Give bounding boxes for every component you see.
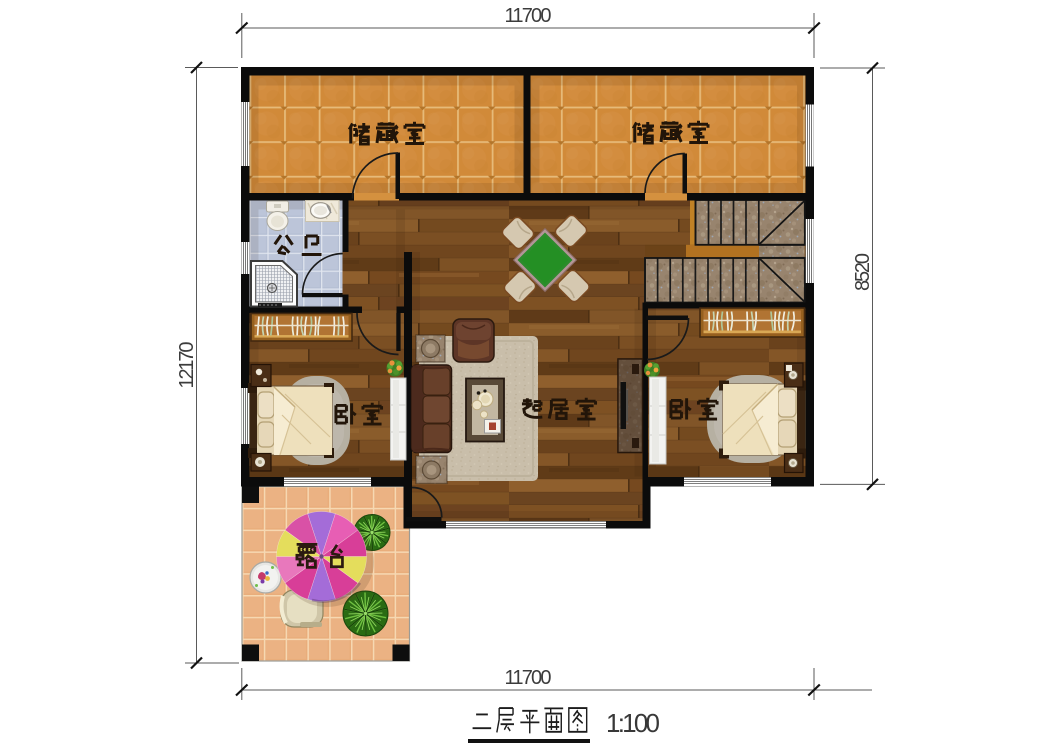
svg-text:8520: 8520	[852, 253, 874, 291]
svg-text:12170: 12170	[176, 342, 198, 389]
svg-text:1:100: 1:100	[606, 708, 660, 738]
svg-text:11700: 11700	[505, 667, 552, 689]
svg-text:11700: 11700	[505, 5, 552, 27]
